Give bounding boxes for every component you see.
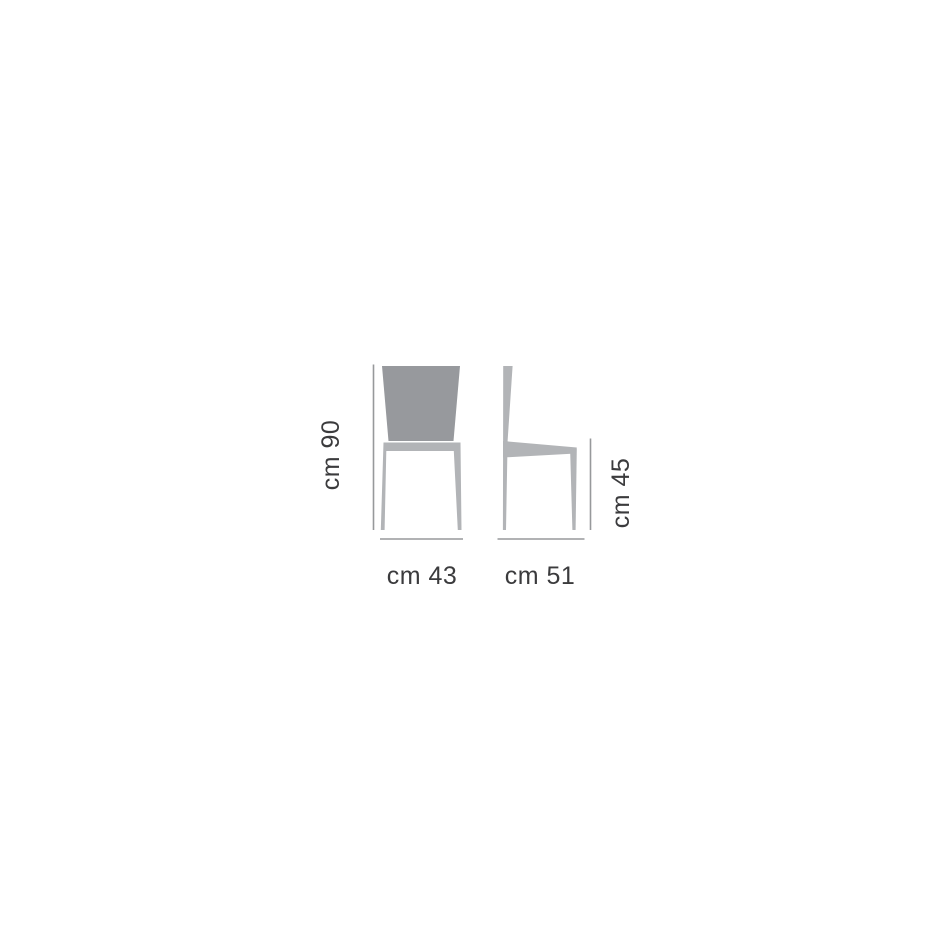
seat-height-dimension-label: cm 45 <box>606 443 636 543</box>
front-view-seat-and-legs <box>381 443 462 531</box>
depth-dimension-label: cm 51 <box>490 561 590 591</box>
width-dimension-label: cm 43 <box>372 561 472 591</box>
side-view-front-leg <box>570 449 577 531</box>
chair-views-svg <box>0 0 950 950</box>
front-view <box>381 366 462 530</box>
height-dimension-label: cm 90 <box>316 405 346 505</box>
dimension-diagram: cm 90 cm 45 cm 43 cm 51 <box>0 0 950 950</box>
side-view-seat <box>503 441 577 458</box>
side-view <box>503 366 577 530</box>
front-view-backrest <box>382 366 460 441</box>
